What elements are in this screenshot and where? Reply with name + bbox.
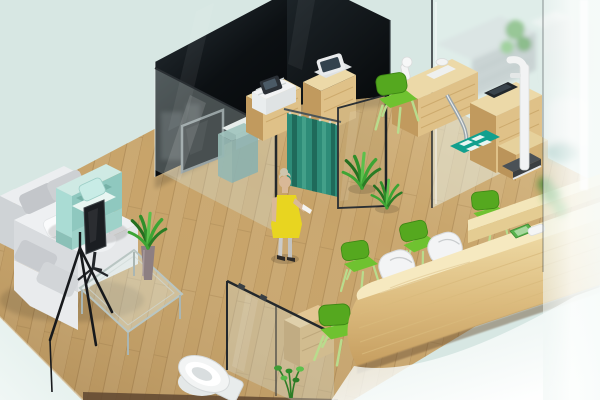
scene-canvas [0, 0, 600, 400]
isometric-clinic-render [0, 0, 600, 400]
frosted-wall [543, 0, 600, 400]
hair-bun [280, 168, 288, 176]
